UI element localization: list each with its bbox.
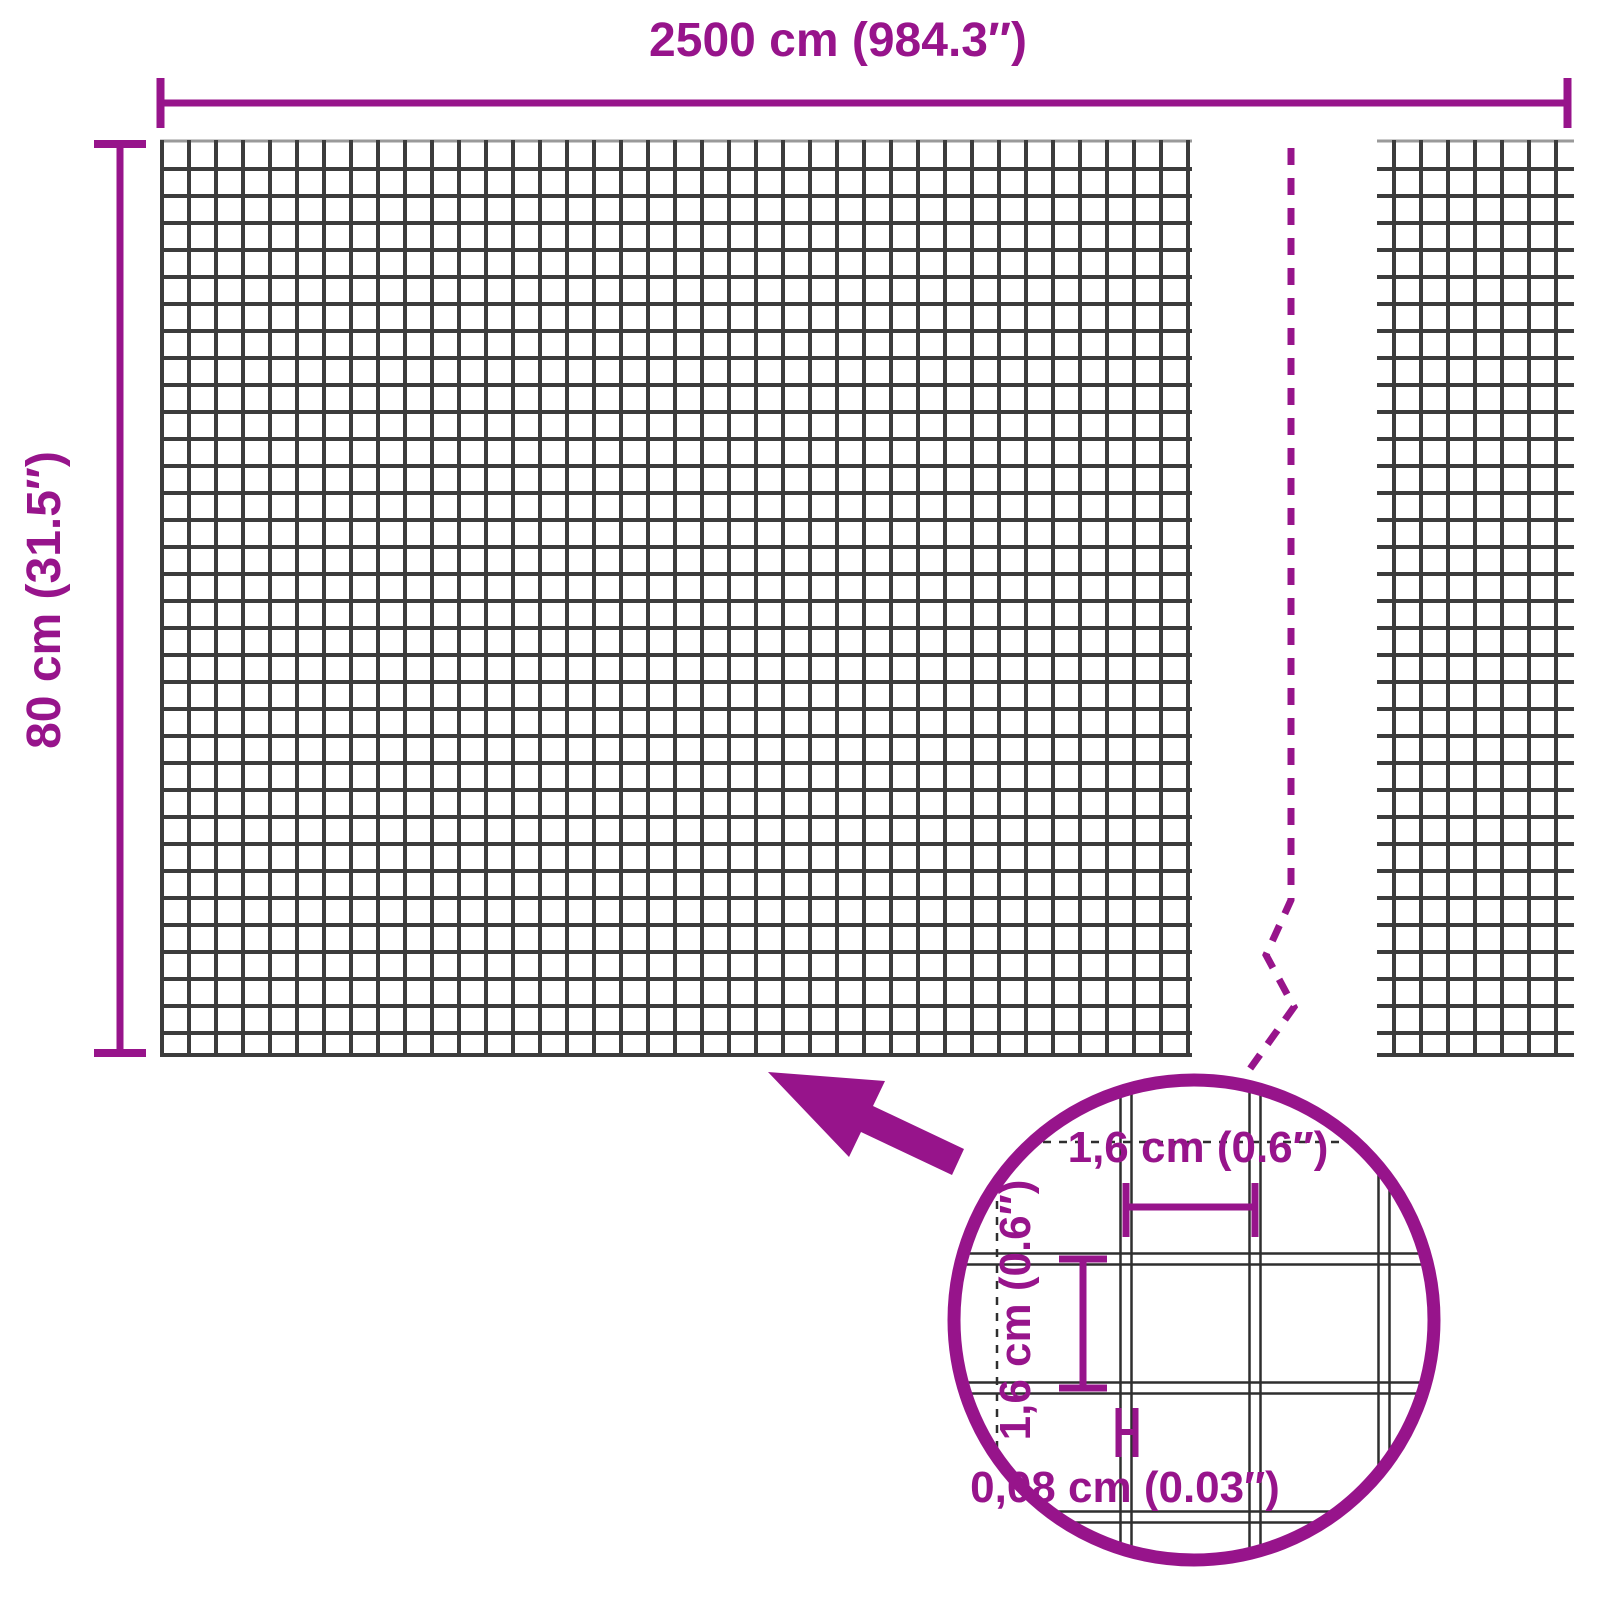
wire-thickness-label: 0,08 cm (0.03″) <box>970 1463 1280 1512</box>
diagram-canvas: 2500 cm (984.3″) 80 cm (31.5″) <box>0 0 1600 1600</box>
width-dimension: 2500 cm (984.3″) <box>158 14 1570 128</box>
width-dimension-label: 2500 cm (984.3″) <box>649 14 1027 67</box>
panel-break-line <box>1247 148 1294 1073</box>
height-dimension: 80 cm (31.5″) <box>18 141 146 1056</box>
opening-height-label: 1,6 cm (0.6″) <box>991 1180 1040 1441</box>
mesh-panel-left <box>160 140 1192 1057</box>
opening-width-label: 1,6 cm (0.6″) <box>1068 1123 1329 1172</box>
height-dimension-label: 80 cm (31.5″) <box>18 451 71 749</box>
product-dimension-diagram: 2500 cm (984.3″) 80 cm (31.5″) <box>0 0 1600 1600</box>
detail-magnifier: 1,6 cm (0.6″) 1,6 cm (0.6″) 0,08 cm (0.0… <box>947 1073 1442 1567</box>
mesh-panel-right <box>1377 140 1574 1057</box>
zoom-arrow <box>768 1072 964 1175</box>
